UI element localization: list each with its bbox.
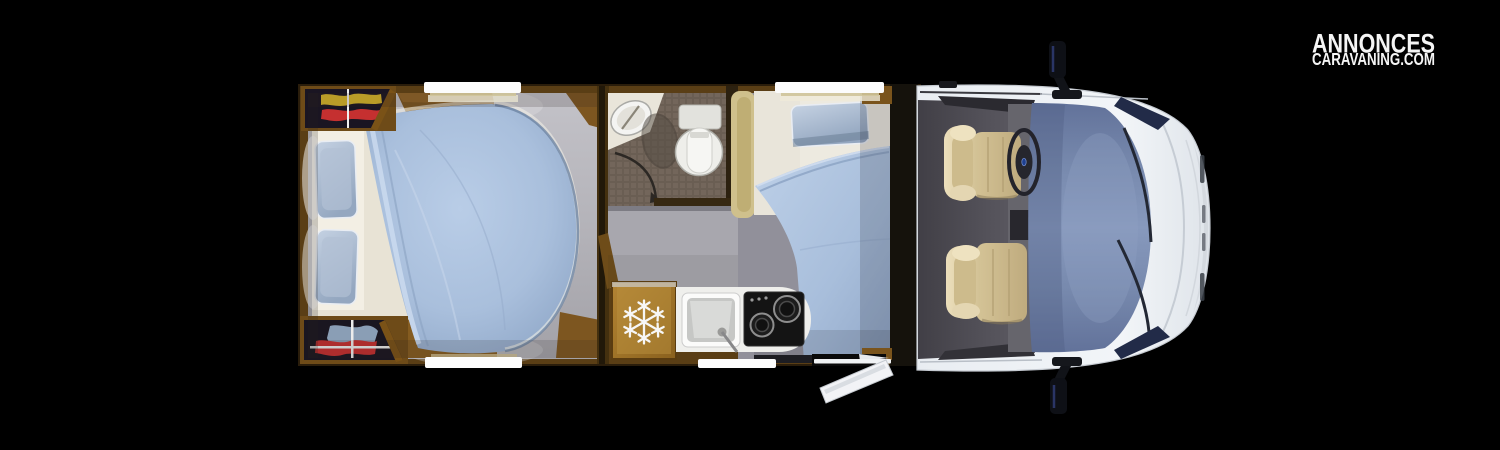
svg-text:CARAVANING.COM: CARAVANING.COM (1312, 49, 1435, 69)
